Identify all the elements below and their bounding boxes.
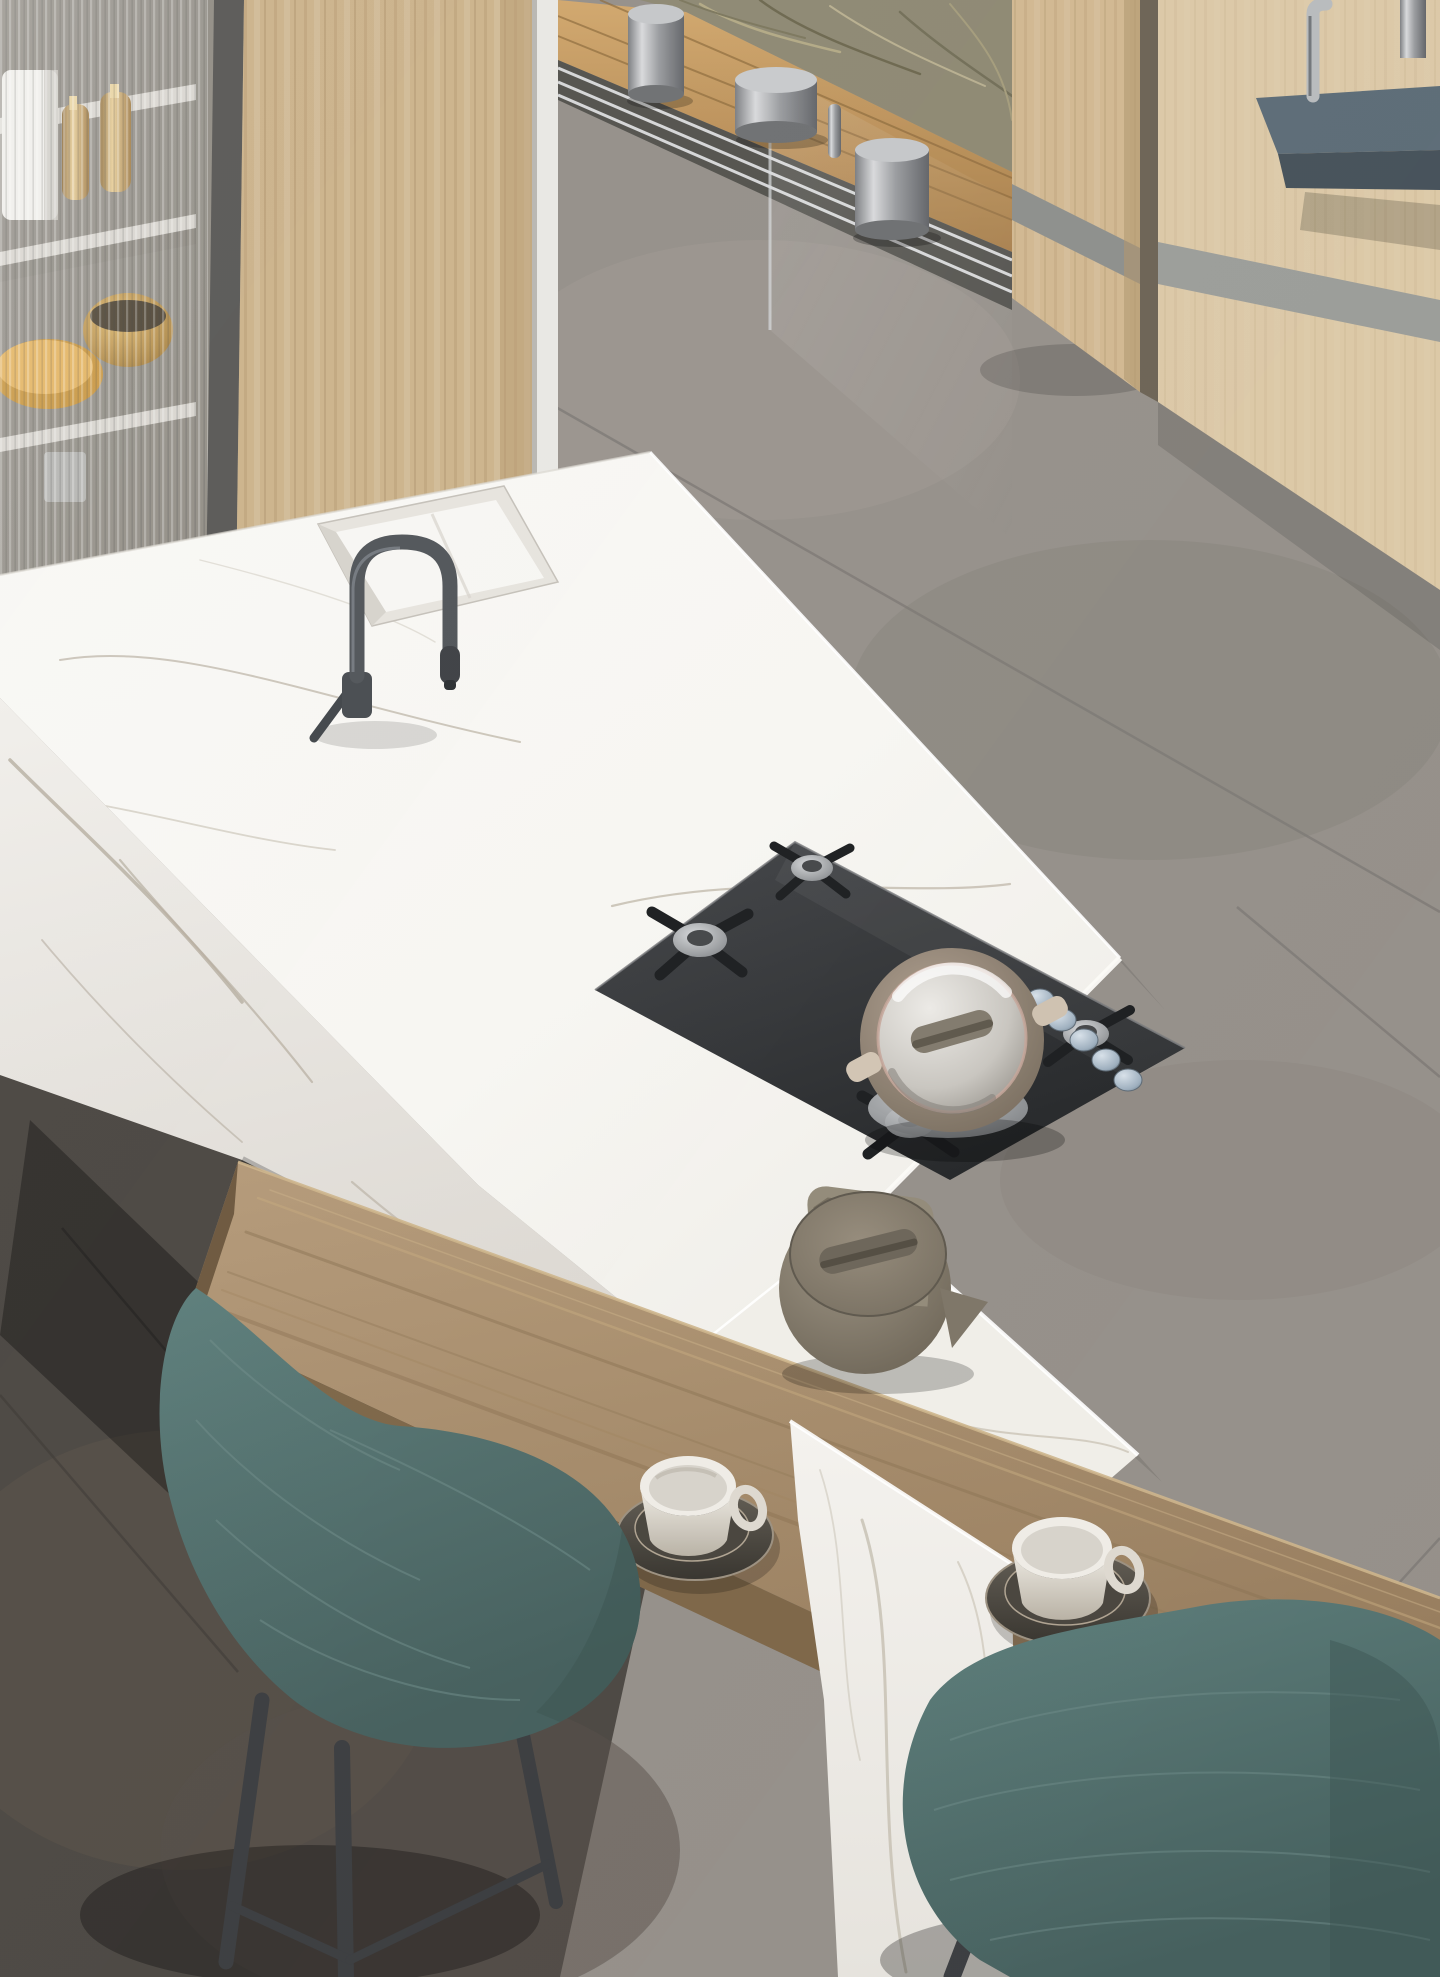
steel-canister xyxy=(627,4,693,109)
column-gap-shadow xyxy=(1140,0,1158,402)
steel-canister xyxy=(853,138,941,247)
kitchen-render xyxy=(0,0,1440,1977)
kitchen-scene xyxy=(0,0,1440,1977)
steel-canister xyxy=(735,67,828,149)
steel-fixture xyxy=(1400,0,1426,58)
door-handle xyxy=(828,104,841,158)
display-cabinet xyxy=(0,0,244,600)
